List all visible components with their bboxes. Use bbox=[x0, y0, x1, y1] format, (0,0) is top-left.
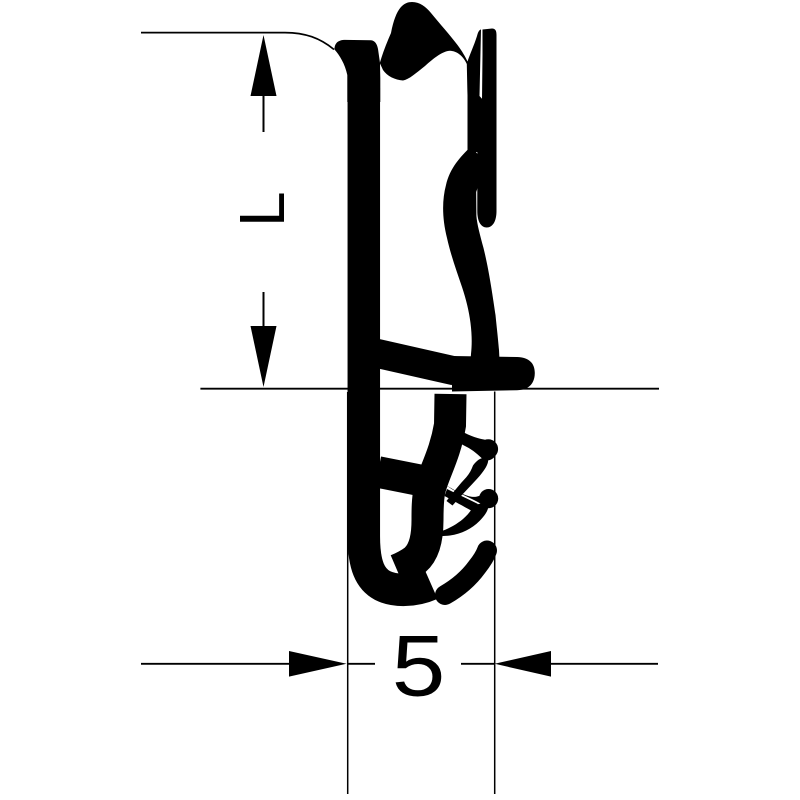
svg-text:5: 5 bbox=[392, 618, 446, 714]
svg-text:L: L bbox=[226, 191, 298, 227]
